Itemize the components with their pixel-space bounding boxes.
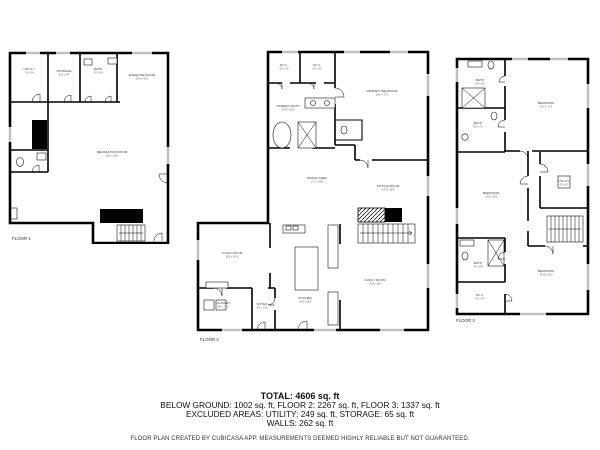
room-dims-wic-2: 6'1 x 6'5	[312, 68, 322, 71]
room-dims-utility: 8'2 x 8'7	[559, 184, 569, 187]
room-dims-bath-mid: 8'0 x 7'2	[473, 126, 483, 129]
room-label-family-room: FAMILY ROOM	[364, 278, 386, 282]
room-label-living-room: LIVING ROOM	[222, 251, 243, 255]
room-label-bath: BATH	[94, 67, 102, 71]
room-label-exercise-room: EXERCISE ROOM	[129, 73, 156, 77]
room-label-dining-area: DINING AREA	[307, 176, 328, 180]
room-dims-bedroom-mid: 13'5 x 12'6	[485, 196, 498, 199]
floor-3-label: FLOOR 3	[456, 318, 475, 323]
room-dims-storage: 6'10 x 9'4	[59, 74, 70, 77]
room-label-utility: UTILITY	[23, 67, 35, 71]
room-label-laundry: LAUNDRY	[216, 301, 231, 305]
room-label-storage: STORAGE	[56, 69, 71, 73]
room-dims-bedroom-bottom: 14'10 x 12'8	[539, 274, 553, 277]
room-dims-dining-area: 17'7 x 20'0	[311, 181, 324, 184]
room-dims-foyer: 6'2 x 7'10	[257, 307, 268, 310]
floor3-stairs	[547, 216, 583, 242]
area-summary: TOTAL: 4606 sq. ft BELOW GROUND: 1002 sq…	[0, 392, 600, 442]
floor-3-plan: BATH 8'0 x 6'1 BEDROOM 15'2 x 17'4 BATH …	[450, 56, 590, 324]
room-dims-bath-top: 8'0 x 6'1	[475, 83, 485, 86]
room-label-bedroom-mid: BEDROOM	[483, 191, 499, 195]
floor-2-plan: W.I.C. 5'6 x 6'5 W.I.C. 6'1 x 6'5 PRIMAR…	[194, 48, 432, 344]
room-dims-bath: 7'6 x 9'4	[93, 72, 103, 75]
room-label-wic: W.I.C.	[476, 293, 485, 297]
floor-1-plan: UTILITY 7'6 x 9'4 STORAGE 6'10 x 9'4 BAT…	[8, 42, 180, 244]
disclaimer-text: FLOOR PLAN CREATED BY CUBICASA APP. MEAS…	[0, 436, 600, 442]
room-label-wic-1: W.I.C.	[280, 63, 289, 67]
room-dims-wic-1: 5'6 x 6'5	[279, 68, 289, 71]
floor-2-label: FLOOR 2	[200, 337, 219, 342]
room-label-wic-2: W.I.C.	[313, 63, 322, 67]
room-label-primary-bedroom: PRIMARY BEDROOM	[367, 89, 398, 93]
room-dims-bedroom-top: 15'2 x 17'4	[540, 106, 553, 109]
room-label-utility: UTILITY	[558, 179, 570, 183]
floor-plan-canvas: UTILITY 7'6 x 9'4 STORAGE 6'10 x 9'4 BAT…	[0, 0, 600, 450]
room-dims-recreation-room: 32'6 x 23'5	[106, 155, 119, 158]
walls-area-text: WALLS: 262 sq. ft	[0, 419, 600, 428]
room-label-recreation-room: RECREATION ROOM	[97, 150, 128, 154]
room-dims-living-room: 13'6 x 14'10	[225, 256, 239, 259]
room-label-kitchen: KITCHEN	[298, 296, 312, 300]
room-dims-primary-bedroom: 18'5 x 17'2	[376, 94, 389, 97]
room-label-foyer: FOYER	[257, 302, 268, 306]
room-label-bath-top: BATH	[476, 78, 484, 82]
floor-3-drawing: BATH 8'0 x 6'1 BEDROOM 15'2 x 17'4 BATH …	[450, 56, 590, 324]
room-dims-kitchen: 13'9 x 16'4	[299, 301, 312, 304]
room-dims-bath-bottom: 6'5 x 8'4	[473, 266, 483, 269]
room-label-sitting-room: SITTING ROOM	[377, 184, 400, 188]
room-dims-utility: 7'6 x 9'4	[24, 72, 34, 75]
room-dims-primary-bath: 12'4 x 11'6	[282, 109, 294, 112]
room-label-bedroom-top: BEDROOM	[538, 101, 554, 105]
room-label-bath-mid: BATH	[474, 121, 482, 125]
floor-1-drawing: UTILITY 7'6 x 9'4 STORAGE 6'10 x 9'4 BAT…	[8, 42, 180, 244]
room-dims-wic: 8'0 x 5'4	[475, 298, 485, 301]
room-label-bath-bottom: BATH	[474, 261, 482, 265]
room-dims-laundry: 9'6 x 7'10	[218, 306, 229, 309]
floor-1-label: FLOOR 1	[12, 236, 31, 241]
room-dims-sitting-room: 14'2 x 15'8	[382, 189, 395, 192]
floor-2-drawing: W.I.C. 5'6 x 6'5 W.I.C. 6'1 x 6'5 PRIMAR…	[194, 48, 432, 344]
room-dims-exercise-room: 15'6 x 9'10	[136, 78, 149, 81]
room-dims-family-room: 16'8 x 18'2	[369, 283, 382, 286]
room-label-bedroom-bottom: BEDROOM	[538, 269, 554, 273]
room-label-primary-bath: PRIMARY BATH	[277, 104, 300, 108]
